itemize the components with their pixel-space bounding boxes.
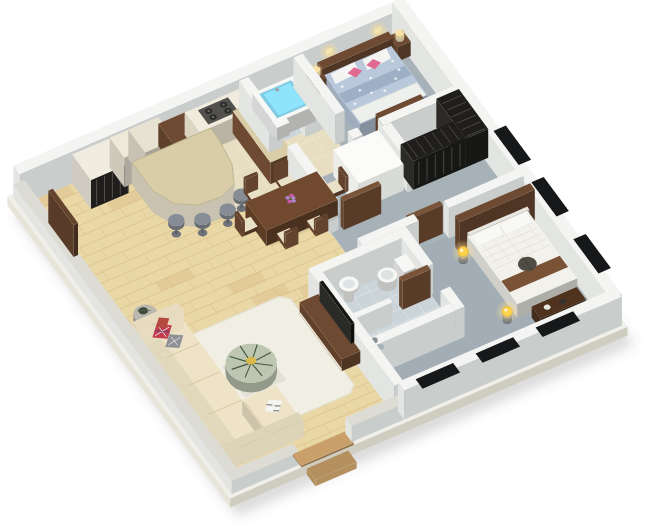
floorplan-stage [0, 0, 650, 532]
apartment-floorplan-3d [0, 0, 650, 532]
